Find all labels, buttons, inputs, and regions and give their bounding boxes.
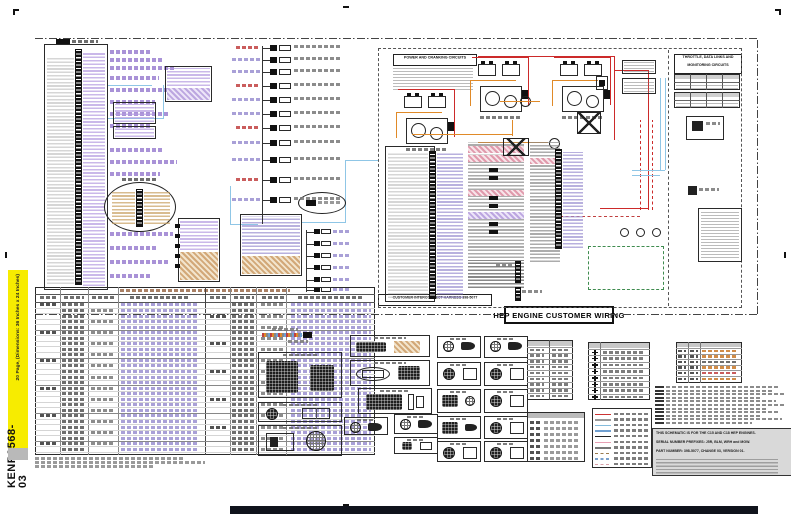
label-text	[91, 342, 114, 345]
label-text	[121, 414, 199, 417]
label-text	[530, 349, 544, 352]
shape	[594, 382, 596, 387]
wire-segment	[665, 78, 666, 170]
label-text	[702, 361, 738, 364]
label-text	[294, 57, 342, 60]
label-text	[232, 337, 254, 340]
label-text	[678, 372, 686, 375]
label-text	[544, 427, 580, 430]
connector-cylinder	[368, 423, 382, 431]
wire-segment	[632, 175, 660, 176]
connector-face	[490, 341, 501, 352]
label-text	[122, 178, 158, 181]
shape	[594, 376, 596, 381]
wire-segment	[306, 232, 314, 233]
wire-segment	[108, 85, 152, 86]
label-text	[530, 427, 542, 430]
label-text	[530, 451, 542, 454]
wire-segment	[262, 128, 270, 129]
label-text	[62, 398, 84, 401]
label-text	[91, 309, 114, 312]
component-box	[510, 422, 524, 434]
label-text	[62, 309, 84, 312]
wire-segment	[262, 48, 270, 49]
wire-segment	[163, 85, 164, 118]
label-text	[121, 409, 199, 412]
legend-line-sample	[595, 458, 611, 460]
shape	[589, 343, 649, 348]
shape	[604, 90, 610, 99]
label-text	[232, 98, 260, 101]
label-text	[666, 418, 782, 420]
label-text	[62, 392, 84, 395]
connector-face	[465, 396, 475, 406]
label-text	[497, 364, 515, 367]
wire-segment	[306, 256, 314, 257]
shape	[270, 125, 277, 131]
label-text	[333, 266, 351, 269]
label-text	[294, 45, 342, 48]
component-box	[404, 96, 422, 108]
shape	[489, 168, 498, 172]
label-text	[261, 337, 284, 340]
label-text	[294, 125, 342, 128]
label-text	[666, 411, 778, 413]
connector-face	[400, 419, 411, 430]
sheet-spine: KENR9568-03 20 Page, (Dimensions: 36 Inc…	[8, 270, 28, 448]
circle-component	[620, 228, 629, 237]
shape	[655, 404, 664, 406]
component-box	[362, 370, 384, 378]
mark	[784, 252, 786, 258]
label-text	[232, 376, 254, 379]
label-text	[40, 296, 56, 299]
wire-segment	[470, 80, 516, 81]
label-text	[91, 353, 114, 356]
label-text	[232, 309, 254, 312]
label-text	[614, 452, 648, 455]
label-text	[678, 378, 686, 381]
text-block	[115, 104, 154, 122]
label-text	[614, 463, 648, 466]
label-text	[110, 58, 163, 62]
shape	[314, 277, 320, 282]
label-text	[62, 331, 84, 334]
shape	[675, 75, 739, 79]
label-text	[62, 370, 84, 373]
wire-segment	[396, 112, 442, 113]
label-text	[62, 387, 84, 390]
legend-line-sample	[595, 453, 611, 455]
wire-segment	[472, 57, 528, 58]
component-box	[408, 394, 414, 410]
label-text	[690, 350, 698, 353]
label-text	[702, 372, 738, 375]
label-text	[530, 445, 542, 448]
connector-body	[398, 366, 420, 380]
sheet-main-title: HEP ENGINE CUSTOMER WIRING	[504, 306, 614, 324]
shape	[431, 93, 435, 96]
label-text	[614, 446, 648, 449]
shape	[270, 57, 277, 63]
wire-segment	[660, 78, 661, 170]
sheet-subtitle: 20 Page, (Dimensions: 36 Inches x 24 Inc…	[16, 274, 21, 380]
label-text	[283, 427, 317, 430]
info-fine-print	[656, 459, 778, 476]
connector-face	[490, 395, 502, 407]
section-divider-line	[609, 314, 757, 315]
label-text	[522, 290, 542, 293]
transfer-switch-symbol	[577, 112, 601, 134]
component-box	[279, 197, 291, 203]
label-text	[72, 40, 98, 43]
label-text	[91, 431, 114, 434]
text-block	[437, 152, 463, 298]
label-text	[603, 377, 645, 380]
label-text	[91, 420, 114, 423]
label-text	[210, 315, 226, 318]
component-box	[321, 241, 331, 246]
component-box	[321, 277, 331, 282]
shape	[655, 422, 664, 424]
wire-segment	[412, 134, 512, 135]
label-text	[91, 364, 114, 367]
text-block	[624, 80, 654, 92]
label-text	[497, 418, 515, 421]
label-text	[236, 46, 260, 49]
shape	[481, 61, 485, 64]
component-box	[502, 64, 520, 76]
component-box	[428, 96, 446, 108]
label-text	[40, 303, 56, 306]
label-text	[232, 112, 260, 115]
shape	[655, 393, 664, 395]
wire-segment	[396, 112, 397, 138]
shape	[675, 93, 739, 97]
wire-segment	[306, 244, 314, 245]
label-text	[62, 376, 84, 379]
label-text	[121, 387, 199, 390]
shape	[563, 61, 567, 64]
label-text	[552, 383, 568, 386]
shape	[594, 350, 596, 355]
label-text	[603, 389, 645, 392]
label-text	[232, 342, 254, 345]
label-text	[236, 84, 260, 87]
connector-face	[490, 447, 502, 459]
label-text	[666, 393, 784, 395]
label-text	[530, 360, 544, 363]
label-text	[232, 198, 260, 201]
label-text	[232, 141, 260, 144]
label-text	[690, 361, 698, 364]
shape	[270, 97, 277, 103]
highlight-band-red	[468, 155, 524, 162]
label-text	[121, 442, 199, 445]
wire-segment	[262, 86, 270, 87]
wire-segment	[262, 60, 270, 61]
label-text	[702, 366, 738, 369]
label-text	[530, 389, 544, 392]
shape	[448, 122, 454, 131]
label-text	[121, 392, 199, 395]
text-block	[47, 56, 74, 284]
label-text	[62, 442, 84, 445]
label-text	[261, 348, 284, 351]
wire-segment	[262, 114, 270, 115]
label-text	[530, 457, 542, 460]
wire-segment	[262, 160, 270, 161]
text-block	[676, 98, 738, 107]
circle-component	[636, 228, 645, 237]
label-text	[232, 326, 254, 329]
label-text	[666, 415, 760, 417]
shape	[594, 356, 596, 361]
label-text	[40, 442, 56, 445]
label-text	[333, 230, 351, 233]
label-text	[121, 448, 199, 451]
label-text	[333, 242, 351, 245]
shape	[677, 343, 741, 347]
label-text	[62, 326, 84, 329]
label-text	[121, 320, 199, 323]
connector-face	[350, 422, 361, 433]
shape	[306, 200, 316, 206]
shape	[594, 369, 596, 374]
shape	[314, 265, 320, 270]
label-text	[232, 315, 254, 318]
shape	[314, 241, 320, 246]
label-text	[552, 360, 568, 363]
label-text	[530, 378, 544, 381]
shape	[270, 83, 277, 89]
label-text	[318, 201, 340, 204]
connector-face	[443, 368, 455, 380]
label-text	[450, 418, 468, 421]
label-text	[690, 366, 698, 369]
component-box	[279, 83, 291, 89]
wire-segment	[588, 375, 650, 376]
shape	[595, 61, 599, 64]
mark	[779, 9, 781, 15]
label-text	[110, 172, 160, 176]
component-box	[584, 64, 602, 76]
label-text	[210, 426, 226, 429]
label-text	[232, 448, 254, 451]
shape	[571, 61, 575, 64]
label-text	[110, 260, 169, 264]
label-text	[291, 303, 371, 306]
pin-strip-connector	[516, 288, 520, 300]
connector-body	[442, 422, 458, 434]
label-text	[706, 122, 720, 125]
text-block	[388, 152, 428, 298]
wire-segment	[614, 56, 615, 140]
wire-sample	[262, 333, 302, 337]
shape	[688, 186, 697, 195]
connector-body	[310, 365, 334, 391]
component-box	[321, 265, 331, 270]
shape	[489, 176, 498, 180]
label-text	[666, 386, 780, 388]
component-box	[279, 69, 291, 75]
label-text	[62, 426, 84, 429]
label-text	[62, 320, 84, 323]
shape	[513, 61, 517, 64]
text-block	[144, 192, 170, 224]
component-box	[510, 395, 524, 407]
label-text	[603, 357, 645, 360]
label-text	[552, 389, 568, 392]
shape	[599, 80, 605, 86]
label-text	[603, 364, 645, 367]
label-text	[291, 320, 371, 323]
info-line-3: PART NUMBER: 398-5077, CHANGE 03, VERSIO…	[656, 449, 791, 453]
component-box	[279, 45, 291, 51]
connector-body	[356, 342, 386, 352]
pin-strip-connector	[76, 50, 81, 284]
label-text	[121, 353, 199, 356]
label-text	[110, 246, 156, 250]
label-text	[40, 359, 56, 362]
shape	[270, 140, 277, 146]
label-text	[666, 422, 752, 424]
legend-line-sample	[595, 464, 611, 466]
wire-segment	[262, 100, 270, 101]
label-text	[121, 326, 199, 329]
label-text	[407, 439, 425, 442]
label-text	[294, 69, 342, 72]
section-divider-line	[757, 38, 758, 314]
label-text	[283, 354, 317, 357]
shape	[489, 222, 498, 226]
label-text	[530, 439, 542, 442]
info-line-2: SERIAL NUMBER PREFIXES: J5R, BLM, WRH an…	[656, 440, 791, 444]
wire-segment	[470, 80, 471, 106]
text-block	[83, 52, 105, 286]
highlight-band-tan	[180, 252, 218, 280]
spine-gray-block	[8, 448, 28, 460]
label-text	[232, 414, 254, 417]
label-text	[62, 448, 84, 451]
shape	[270, 45, 277, 51]
connector-body	[266, 361, 298, 393]
circle-component	[652, 228, 661, 237]
label-text	[110, 160, 177, 164]
label-text	[450, 338, 468, 341]
label-text	[35, 465, 155, 468]
label-text	[91, 409, 114, 412]
pin-strip-connector	[556, 150, 561, 248]
connector-face	[306, 431, 326, 451]
label-text	[294, 140, 342, 143]
label-text	[450, 443, 468, 446]
label-text	[121, 398, 199, 401]
label-text	[110, 76, 159, 80]
wire-segment	[588, 387, 650, 388]
label-text	[121, 337, 199, 340]
label-text	[121, 381, 199, 384]
label-text	[62, 420, 84, 423]
label-text	[232, 370, 254, 373]
label-text	[121, 309, 199, 312]
label-text	[236, 178, 260, 181]
label-text	[678, 361, 686, 364]
label-text	[232, 426, 254, 429]
label-text	[666, 390, 772, 392]
shape	[314, 229, 320, 234]
mark	[5, 252, 7, 258]
text-block	[563, 152, 583, 248]
label-text	[699, 188, 719, 191]
label-text	[62, 431, 84, 434]
connector-face	[266, 408, 278, 420]
text-block	[167, 68, 210, 86]
shape	[528, 341, 572, 346]
label-text	[40, 387, 56, 390]
shape	[594, 395, 596, 400]
label-text	[232, 364, 254, 367]
shape	[270, 197, 277, 203]
label-text	[232, 320, 254, 323]
shape	[314, 253, 320, 258]
label-text	[666, 408, 768, 410]
text-block	[624, 62, 654, 72]
label-text	[91, 398, 114, 401]
connector-cylinder	[461, 342, 475, 350]
label-text	[91, 331, 114, 334]
label-text	[333, 278, 351, 281]
wire-segment	[552, 80, 553, 106]
connector-cylinder	[418, 420, 432, 428]
dashed-wire-segment	[668, 50, 669, 306]
label-text	[210, 342, 226, 345]
wire-segment	[345, 160, 378, 161]
label-text	[261, 303, 284, 306]
schematic-info-box: THIS SCHEMATIC IS FOR THE C15 AND C18 HE…	[652, 428, 791, 476]
wire-segment	[588, 355, 650, 356]
label-text	[552, 372, 568, 375]
shape	[594, 388, 596, 393]
connector-body	[442, 395, 458, 407]
wire-segment	[262, 72, 270, 73]
wire-segment	[554, 57, 610, 58]
label-text	[298, 296, 364, 299]
label-text	[232, 58, 260, 61]
label-text	[497, 338, 515, 341]
label-text	[294, 97, 342, 100]
label-text	[450, 391, 468, 394]
label-text	[232, 437, 254, 440]
wire-segment	[262, 180, 270, 181]
label-text	[232, 70, 260, 73]
label-text	[294, 157, 342, 160]
label-text	[690, 378, 698, 381]
label-text	[614, 429, 648, 432]
label-text	[291, 315, 371, 318]
wire-segment	[478, 56, 614, 57]
label-text	[234, 296, 254, 299]
label-text	[690, 372, 698, 375]
label-text	[530, 372, 544, 375]
shape	[270, 177, 277, 183]
label-text	[232, 409, 254, 412]
label-text	[121, 431, 199, 434]
label-text	[530, 433, 542, 436]
label-text	[294, 177, 342, 180]
wire-segment	[454, 89, 455, 137]
label-text	[283, 404, 317, 407]
